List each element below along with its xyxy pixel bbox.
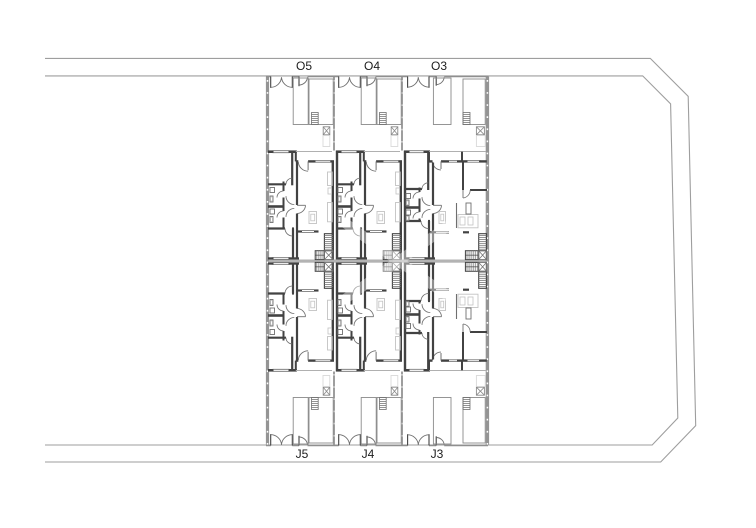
svg-text:O4: O4 [364,59,380,73]
svg-text:J5: J5 [296,447,309,461]
svg-text:J4: J4 [362,447,375,461]
svg-text:O3: O3 [431,59,447,73]
svg-text:O5: O5 [296,59,312,73]
svg-text:J3: J3 [431,447,444,461]
